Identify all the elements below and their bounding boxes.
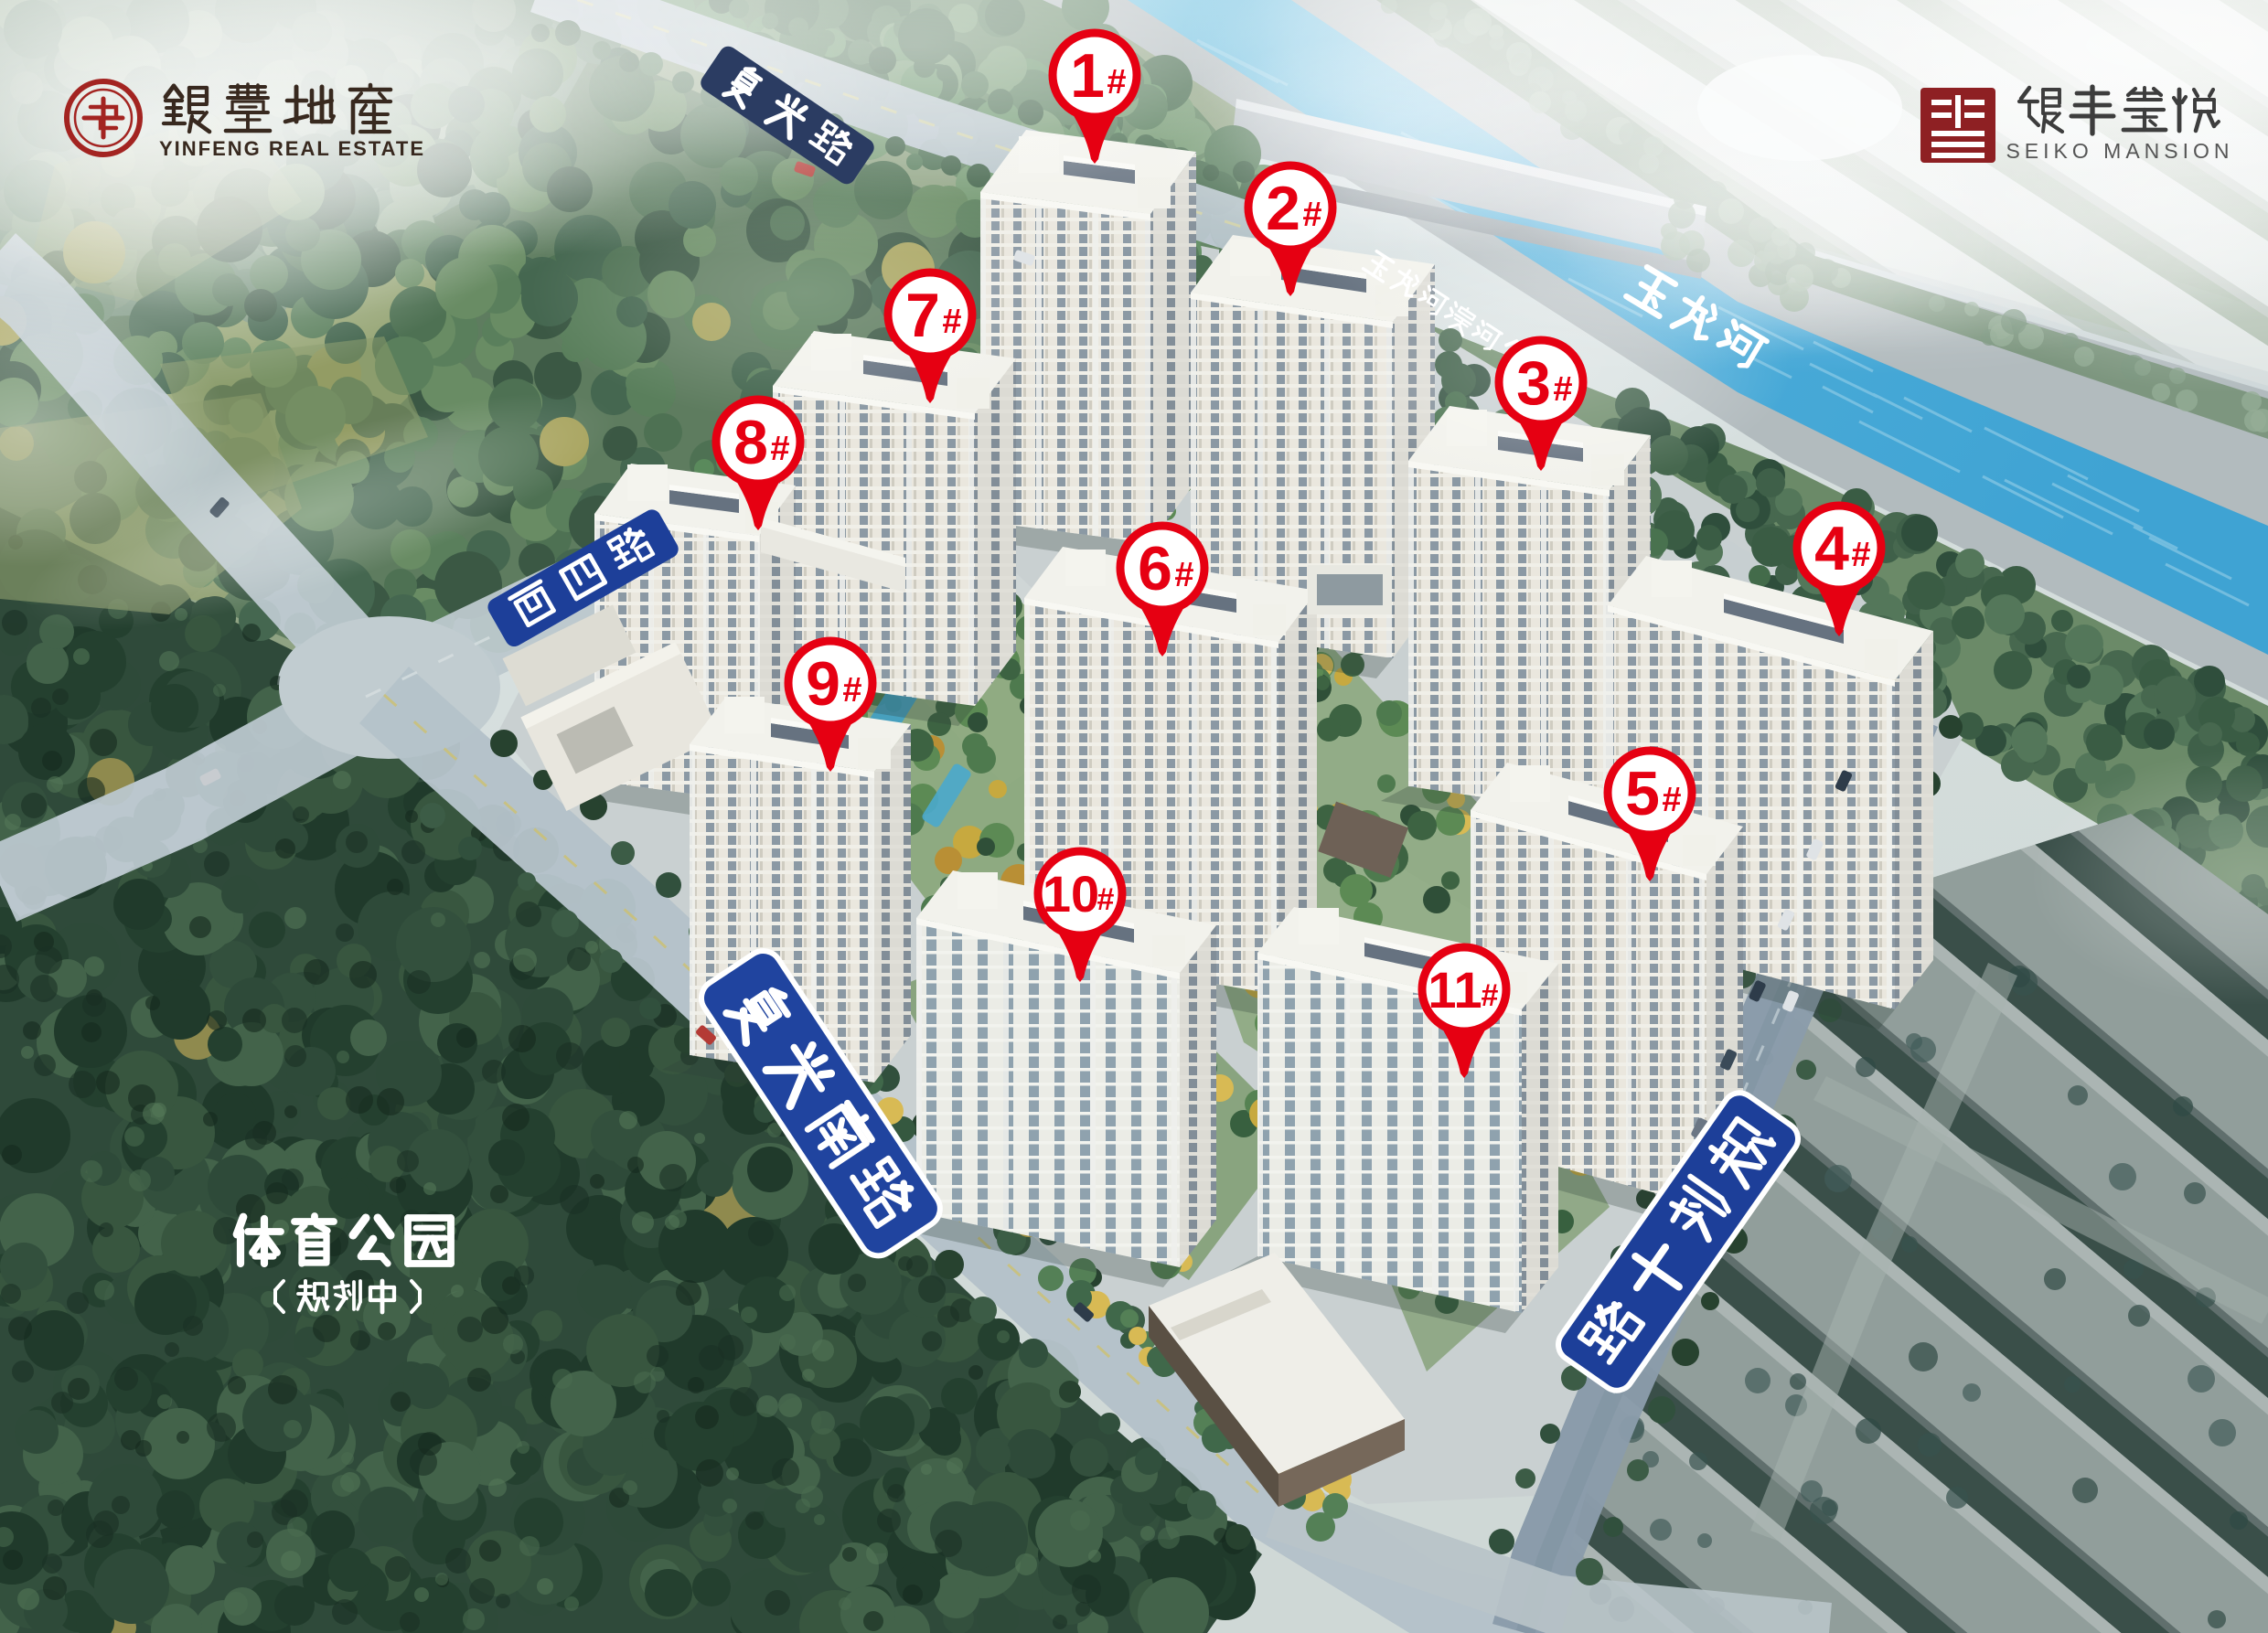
svg-text:SEIKO MANSION: SEIKO MANSION xyxy=(2006,139,2233,163)
svg-text:#: # xyxy=(1174,556,1193,594)
svg-text:11: 11 xyxy=(1428,961,1482,1019)
svg-text:7: 7 xyxy=(905,281,940,350)
svg-text:#: # xyxy=(1851,536,1870,574)
svg-text:#: # xyxy=(1097,882,1115,917)
svg-text:#: # xyxy=(770,430,789,468)
svg-text:9: 9 xyxy=(806,649,840,719)
svg-text:10: 10 xyxy=(1043,865,1099,923)
svg-text:#: # xyxy=(1302,196,1321,234)
svg-text:#: # xyxy=(1482,978,1499,1013)
svg-text:8: 8 xyxy=(733,408,768,477)
svg-text:4: 4 xyxy=(1814,514,1849,583)
svg-text:#: # xyxy=(842,671,861,710)
svg-text:3: 3 xyxy=(1516,348,1551,418)
svg-text:YINFENG REAL ESTATE: YINFENG REAL ESTATE xyxy=(159,137,425,160)
svg-text:#: # xyxy=(942,303,961,341)
svg-text:#: # xyxy=(1662,781,1681,819)
svg-text:2: 2 xyxy=(1266,174,1300,243)
svg-text:1: 1 xyxy=(1070,41,1105,111)
svg-text:5: 5 xyxy=(1625,759,1660,828)
svg-text:#: # xyxy=(1107,63,1126,101)
svg-text:6: 6 xyxy=(1138,534,1172,603)
svg-text:#: # xyxy=(1553,370,1572,409)
